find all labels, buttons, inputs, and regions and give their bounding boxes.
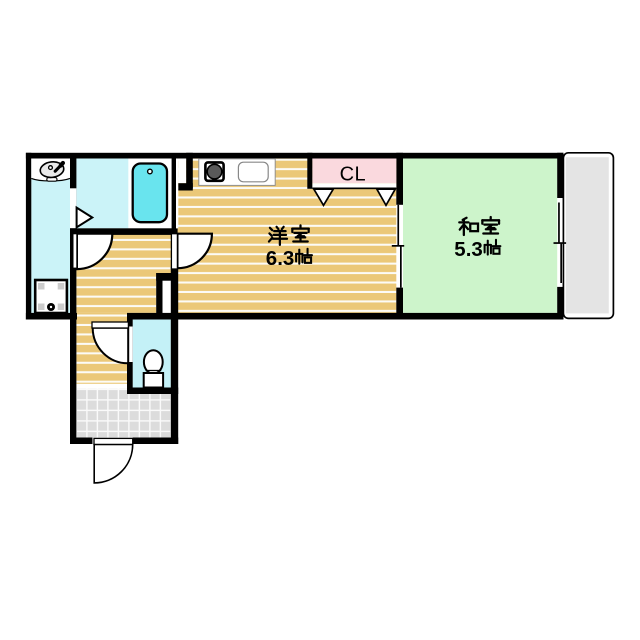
svg-text:6.3: 6.3: [266, 247, 295, 270]
svg-text:CL: CL: [340, 163, 367, 185]
svg-text:5.3: 5.3: [454, 238, 483, 261]
